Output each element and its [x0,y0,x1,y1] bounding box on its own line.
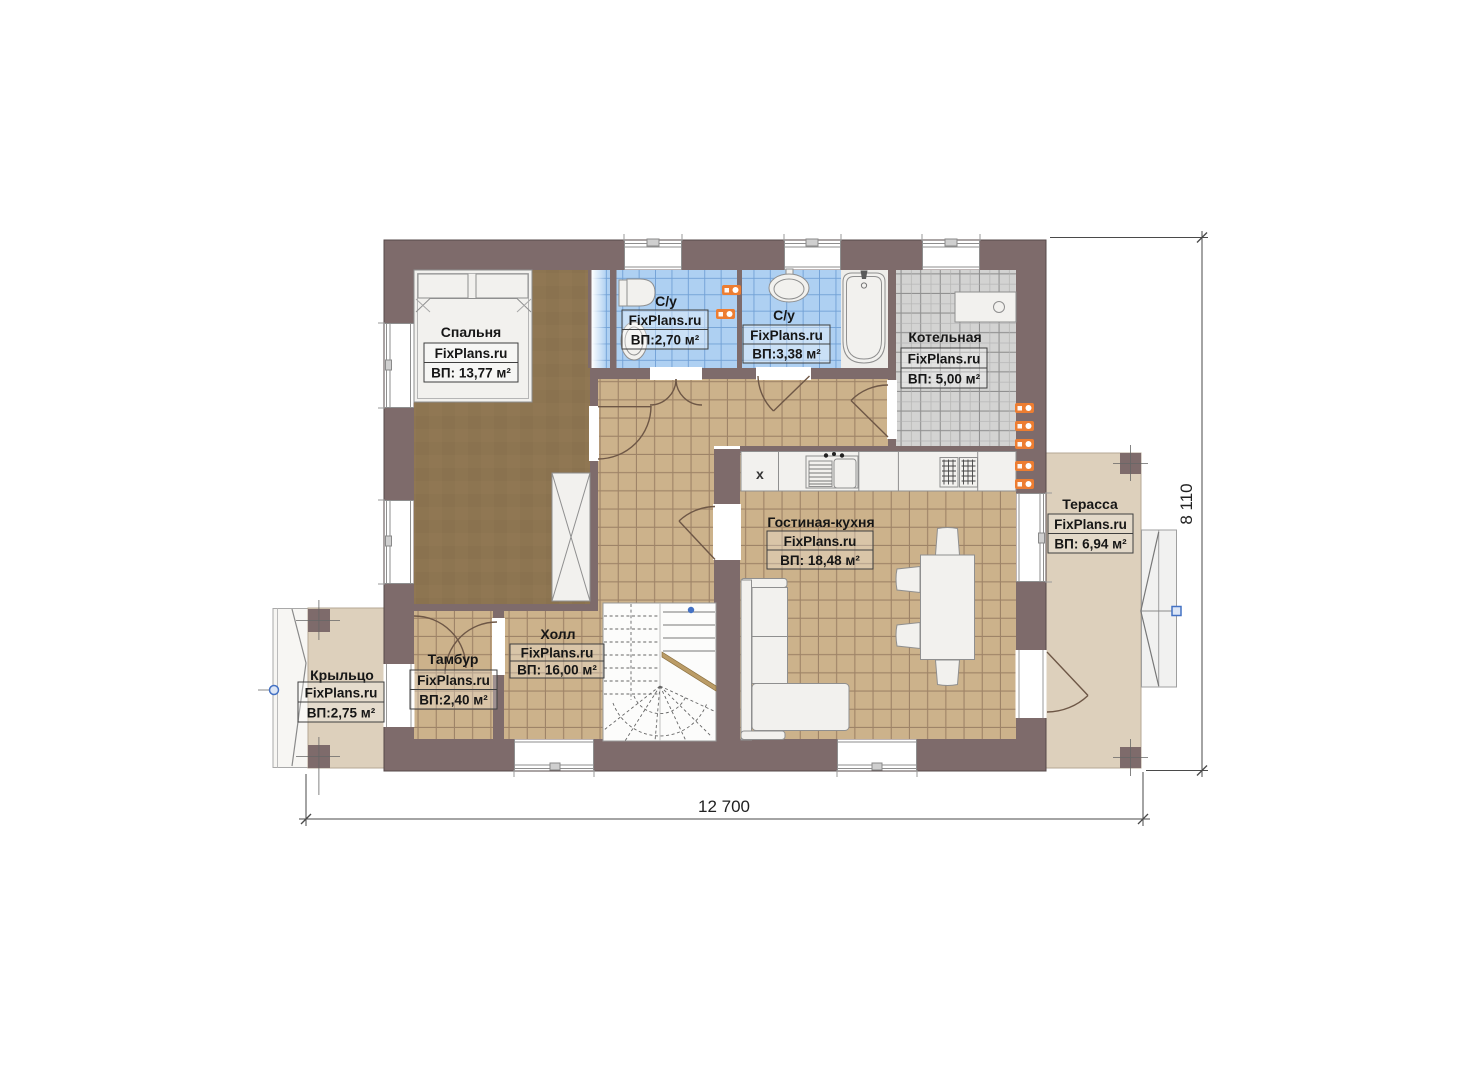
svg-text:Крыльцо: Крыльцо [310,667,374,683]
svg-text:ВП:3,38 м²: ВП:3,38 м² [752,347,821,362]
svg-text:8 110: 8 110 [1177,483,1196,524]
svg-text:FixPlans.ru: FixPlans.ru [750,328,823,343]
svg-text:С/у: С/у [773,307,795,323]
svg-text:FixPlans.ru: FixPlans.ru [908,352,981,367]
svg-text:С/у: С/у [655,293,677,309]
svg-text:ВП: 16,00 м²: ВП: 16,00 м² [517,663,597,678]
svg-text:Гостиная-кухня: Гостиная-кухня [767,514,874,530]
svg-text:ВП:2,75 м²: ВП:2,75 м² [307,706,376,721]
svg-text:FixPlans.ru: FixPlans.ru [784,534,857,549]
svg-text:Котельная: Котельная [908,329,981,345]
svg-text:Холл: Холл [540,626,575,642]
svg-text:Терасса: Терасса [1062,496,1118,512]
svg-text:ВП:2,40 м²: ВП:2,40 м² [419,693,488,708]
svg-text:ВП: 13,77 м²: ВП: 13,77 м² [431,366,511,381]
svg-text:FixPlans.ru: FixPlans.ru [521,646,594,661]
svg-text:ВП: 5,00 м²: ВП: 5,00 м² [908,372,981,387]
svg-text:FixPlans.ru: FixPlans.ru [305,686,378,701]
svg-text:12 700: 12 700 [698,797,750,816]
svg-text:ВП: 6,94 м²: ВП: 6,94 м² [1054,537,1127,552]
svg-text:Спальня: Спальня [441,324,501,340]
svg-text:ВП:2,70 м²: ВП:2,70 м² [631,333,700,348]
svg-text:x: x [756,466,764,482]
svg-text:Тамбур: Тамбур [428,651,479,667]
svg-text:FixPlans.ru: FixPlans.ru [629,313,702,328]
svg-text:ВП: 18,48 м²: ВП: 18,48 м² [780,553,860,568]
svg-text:FixPlans.ru: FixPlans.ru [435,346,508,361]
svg-text:FixPlans.ru: FixPlans.ru [1054,517,1127,532]
svg-text:FixPlans.ru: FixPlans.ru [417,673,490,688]
